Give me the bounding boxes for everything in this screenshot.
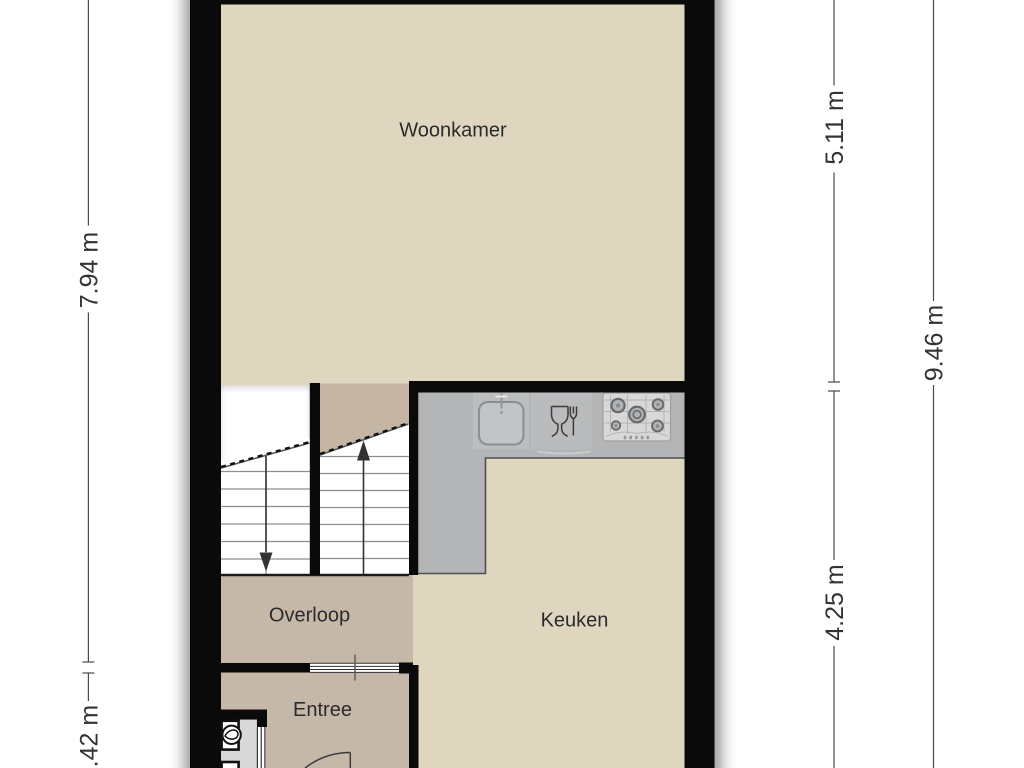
svg-text:5.11 m: 5.11 m <box>821 90 849 165</box>
svg-text:9.46 m: 9.46 m <box>921 305 949 381</box>
svg-text:Overloop: Overloop <box>269 605 350 627</box>
svg-text:Keuken: Keuken <box>541 610 609 632</box>
svg-text:1.42 m: 1.42 m <box>75 705 103 768</box>
svg-text:Woonkamer: Woonkamer <box>399 120 507 142</box>
svg-text:Entree: Entree <box>293 699 352 721</box>
svg-text:4.25 m: 4.25 m <box>821 564 849 640</box>
svg-text:7.94 m: 7.94 m <box>75 232 103 308</box>
